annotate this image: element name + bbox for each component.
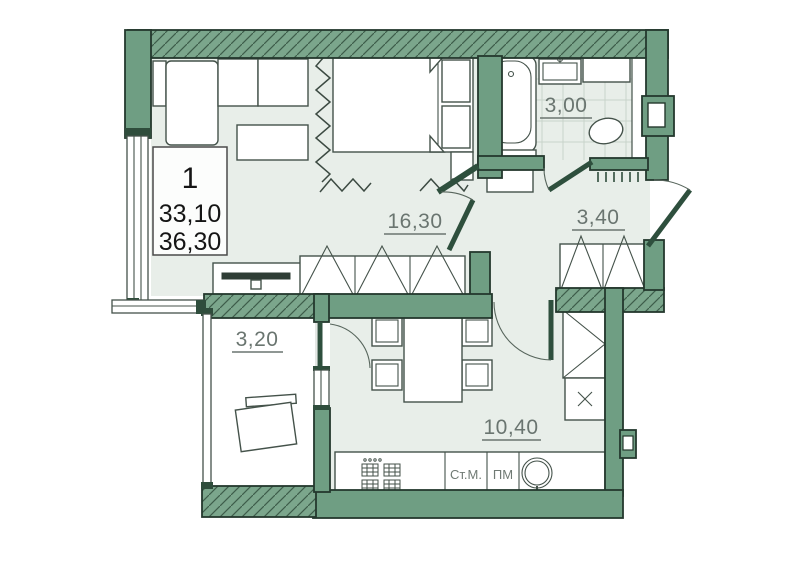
shaft-opening [648, 103, 665, 127]
room-label-kitchen: 10,40 [483, 416, 538, 439]
rooms-count: 1 [182, 162, 199, 195]
room-label-hallway: 3,40 [577, 206, 620, 229]
wall-kitchen-right [605, 288, 623, 496]
wall-kitchen-bottom [313, 490, 623, 518]
wall-balcony-parapet [202, 486, 316, 517]
kitchen-box-opening [623, 436, 633, 450]
pillow [442, 106, 470, 148]
wall-bath-bottom-right [590, 158, 648, 170]
cabinet-x [565, 378, 605, 420]
living-area-value: 33,10 [159, 200, 222, 228]
wall-living-kitchen [316, 294, 492, 318]
bed [333, 56, 473, 152]
wall-balcony-kitchen-top [314, 294, 329, 322]
coffee-table [237, 125, 308, 160]
wall-living-hall [470, 252, 490, 296]
floor-plan: 1 33,10 36,30 [0, 0, 800, 565]
total-area-value: 36,30 [159, 228, 222, 256]
room-label-bathroom: 3,00 [545, 94, 588, 117]
wall-balcony-kitchen-bottom [314, 408, 330, 492]
dishwasher-label: ПМ [493, 467, 513, 482]
wall-below-entrance [644, 240, 664, 290]
info-box: 1 33,10 36,30 [153, 147, 227, 256]
room-label-living: 16,30 [387, 210, 442, 233]
wall-living-balcony [204, 294, 318, 318]
window-balcony [201, 308, 213, 489]
tv [222, 273, 290, 279]
balcony-desk [235, 402, 296, 451]
vanity-counter [583, 58, 630, 82]
wall-bath-bottom-left [478, 156, 544, 170]
wall-left-upper [125, 30, 151, 138]
wardrobe-hall [560, 236, 646, 292]
pillow [442, 60, 470, 102]
window-kitchen-balcony [313, 366, 330, 410]
room-label-balcony: 3,20 [236, 328, 279, 351]
wall-top [128, 30, 668, 58]
washing-machine-label: Ст.М. [450, 467, 482, 482]
fridge-cabinet [563, 310, 605, 378]
floor-plan-page: 1 33,10 36,30 [0, 0, 800, 565]
entrance-door [648, 180, 690, 246]
dining-table [404, 310, 462, 402]
